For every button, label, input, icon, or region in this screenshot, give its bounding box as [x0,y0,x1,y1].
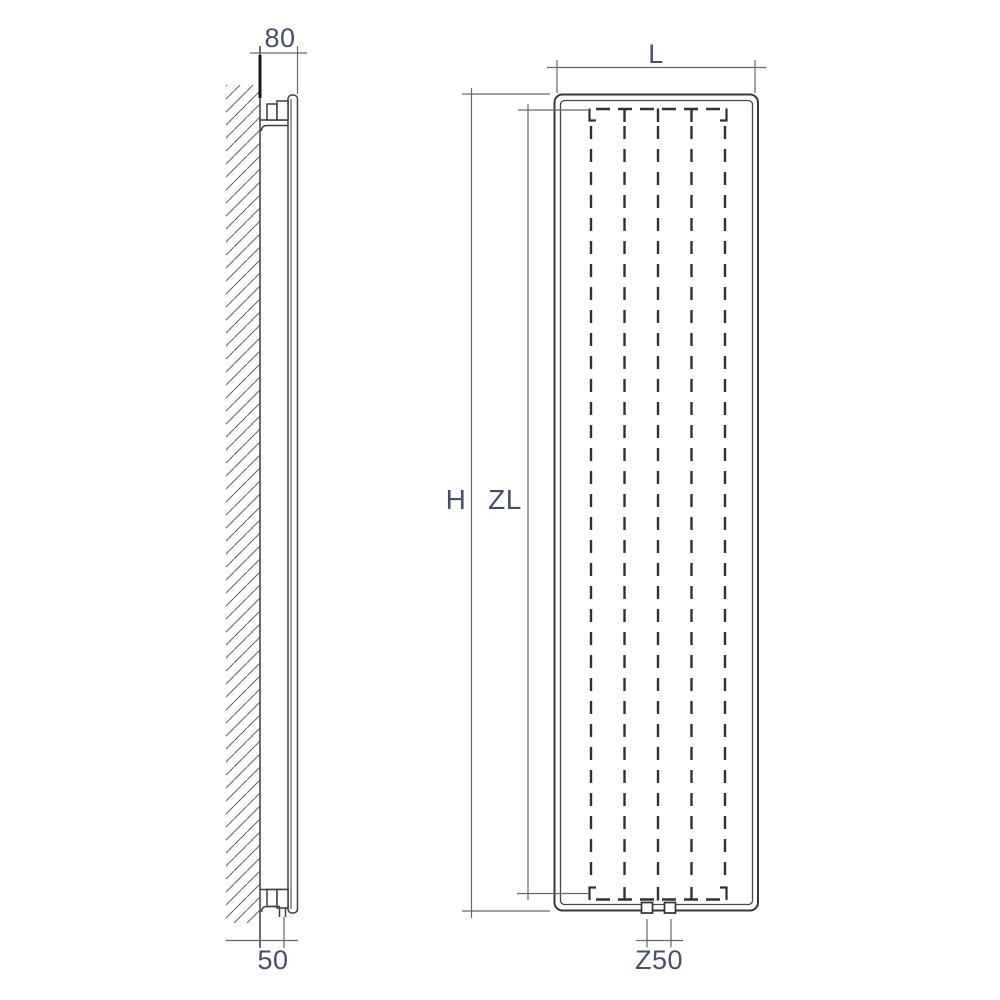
connection-stub-left [642,903,653,914]
drawing-canvas: 80 50 [0,0,1000,1000]
dim-label-Z50: Z50 [635,945,683,975]
dim-label-80: 80 [264,23,295,53]
frame-outer-rect [555,95,759,911]
connection-stub-right [665,903,676,914]
radiator-panel-side [288,95,298,913]
wall [226,46,260,948]
dim-label-H: H [446,484,467,515]
bracket-block-large [277,101,288,120]
radiator-dimension-diagram: 80 50 [0,0,1000,1000]
wall-hatching [226,85,260,923]
dim-label-ZL: ZL [488,484,522,515]
bracket-block-small [267,104,277,120]
dim-label-L: L [648,39,664,69]
panel-body-side [288,95,298,913]
radiator-frame [555,95,759,911]
dim-label-50: 50 [257,945,288,975]
bracket-block-large [277,890,288,909]
bracket-block-small [267,890,277,907]
